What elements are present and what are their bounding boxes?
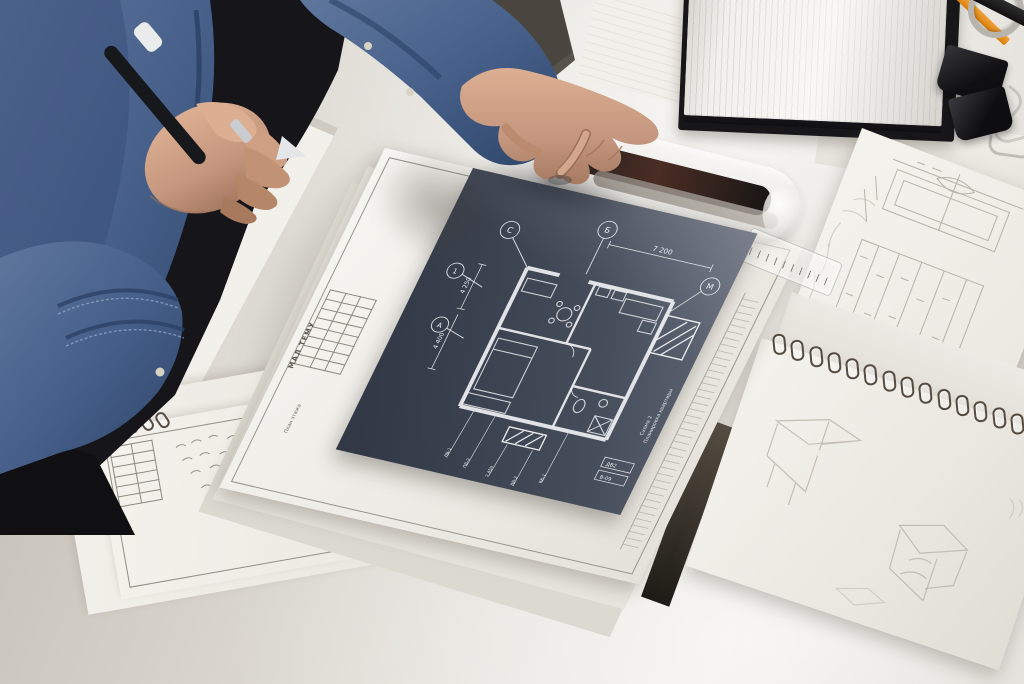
person [0, 0, 1024, 535]
photo-canvas: { "meta": { "scene": "overhead photo of … [0, 0, 1024, 535]
denim-left-sleeve [0, 241, 184, 474]
